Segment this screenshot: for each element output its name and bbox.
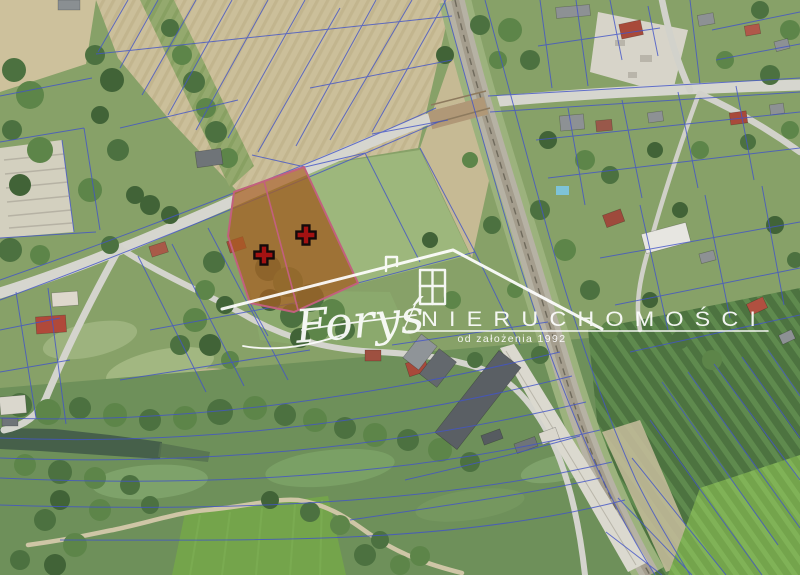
tagline-text: od założenia 1992 [457, 333, 566, 345]
brand-script-text: Foryś [292, 289, 428, 354]
pool [556, 186, 569, 195]
brand-main-text: NIERUCHOMOŚCI [421, 307, 767, 331]
aerial-map: Foryś NIERUCHOMOŚCI od założenia 1992 [0, 0, 800, 575]
